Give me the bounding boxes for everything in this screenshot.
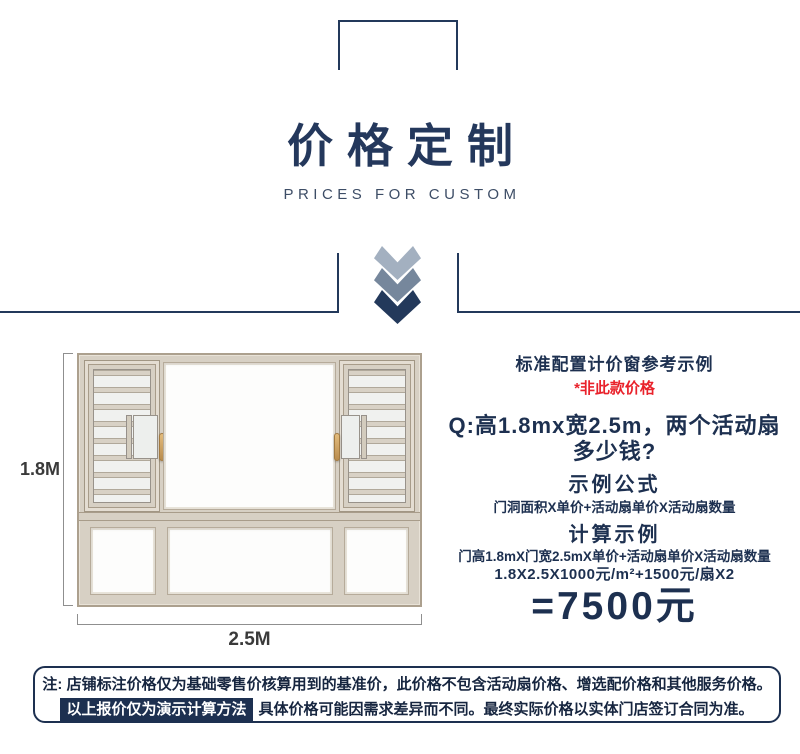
height-dimension-label: 1.8M <box>12 459 60 480</box>
calc-example-line1: 门高1.8mX门宽2.5mX单价+活动扇单价X活动扇数量 <box>422 549 800 565</box>
note-line2: 以上报价仅为演示计算方法具体价格可能因需求差异而不同。最终实际价格以实体门店签订… <box>35 698 779 722</box>
width-dimension-label: 2.5M <box>77 629 422 651</box>
pricing-disclaimer: *非此款价格 <box>422 380 800 398</box>
section-subtitle: PRICES FOR CUSTOM <box>0 186 800 203</box>
note-box: 注: 店铺标注价格仅为基础零售价核算用到的基准价，此价格不包含活动扇价格、增选配… <box>33 666 781 723</box>
height-dimension-line <box>63 353 73 606</box>
calc-example-title: 计算示例 <box>422 523 800 547</box>
window-transom-bar <box>79 512 420 521</box>
width-dimension-line <box>77 614 422 625</box>
window-bottom-pane-left <box>90 527 156 595</box>
divider-line-left <box>0 253 339 313</box>
note-highlight: 以上报价仅为演示计算方法 <box>60 698 252 722</box>
calc-result: =7500元 <box>422 585 800 629</box>
grille-vertical-bar <box>361 415 367 459</box>
top-bracket-decoration <box>338 20 458 70</box>
grille-vertical-bar <box>126 415 132 459</box>
window-bottom-pane-right <box>344 527 409 595</box>
window-handle <box>334 433 340 461</box>
divider-line-right <box>457 253 800 313</box>
window-bottom-pane-center <box>167 527 333 595</box>
window-sash-left <box>84 360 160 512</box>
section-title: 价格定制 <box>0 110 800 176</box>
formula-text: 门洞面积X单价+活动扇单价X活动扇数量 <box>422 500 800 516</box>
pricing-question-line2: 多少钱? <box>422 439 800 465</box>
price-custom-section: 价格定制 PRICES FOR CUSTOM 1.8M 2.5M <box>0 0 800 754</box>
note-line2-text: 具体价格可能因需求差异而不同。最终实际价格以实体门店签订合同为准。 <box>259 701 754 718</box>
grille-tall-pane <box>133 415 158 459</box>
pricing-heading: 标准配置计价窗参考示例 <box>422 355 800 375</box>
window-fixed-pane <box>163 362 336 510</box>
calc-example-line2: 1.8X2.5X1000元/m²+1500元/扇X2 <box>422 566 800 583</box>
chevron-down-stack <box>374 246 421 324</box>
grille-tall-pane <box>341 415 360 459</box>
pricing-question-line1: Q:高1.8mx宽2.5m，两个活动扇 <box>422 413 800 439</box>
window-sash-right <box>339 360 415 512</box>
window-illustration <box>77 353 422 607</box>
note-line1: 注: 店铺标注价格仅为基础零售价核算用到的基准价，此价格不包含活动扇价格、增选配… <box>35 675 779 694</box>
formula-title: 示例公式 <box>422 473 800 497</box>
dimension-tick <box>63 353 73 354</box>
pricing-example-panel: 标准配置计价窗参考示例 *非此款价格 Q:高1.8mx宽2.5m，两个活动扇 多… <box>422 355 800 629</box>
dimension-tick <box>63 605 73 606</box>
